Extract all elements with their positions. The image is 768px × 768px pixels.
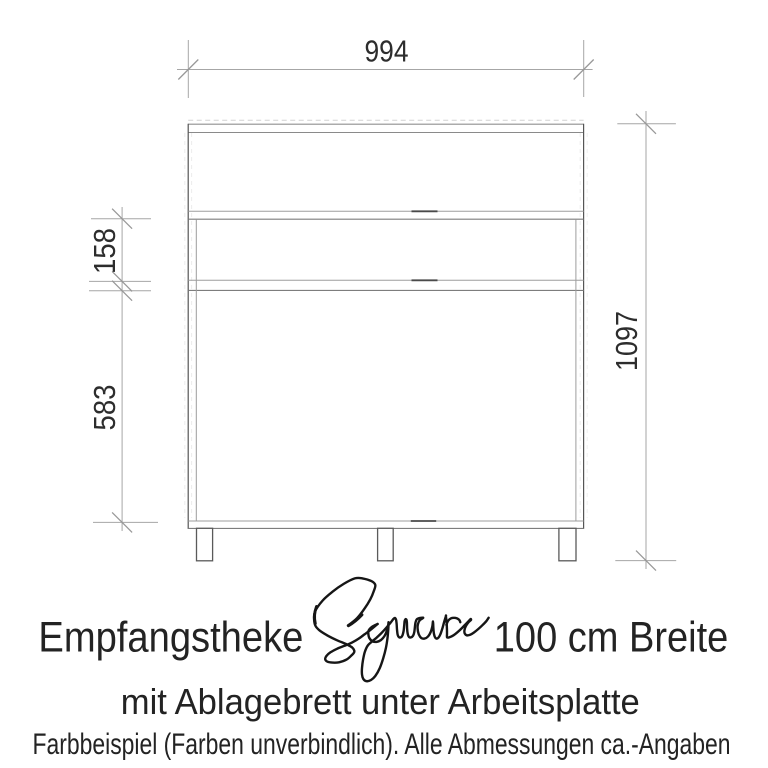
svg-text:583: 583 [88, 385, 122, 431]
svg-text:1097: 1097 [610, 311, 644, 371]
svg-text:158: 158 [88, 228, 122, 274]
svg-text:Farbbeispiel (Farben unverbind: Farbbeispiel (Farben unverbindlich). All… [33, 728, 731, 761]
svg-text:mit Ablagebrett unter Arbeitsp: mit Ablagebrett unter Arbeitsplatte [121, 681, 640, 722]
svg-text:994: 994 [365, 35, 409, 69]
svg-text:Empfangstheke: Empfangstheke [38, 614, 303, 662]
svg-text:100 cm Breite: 100 cm Breite [494, 614, 729, 662]
